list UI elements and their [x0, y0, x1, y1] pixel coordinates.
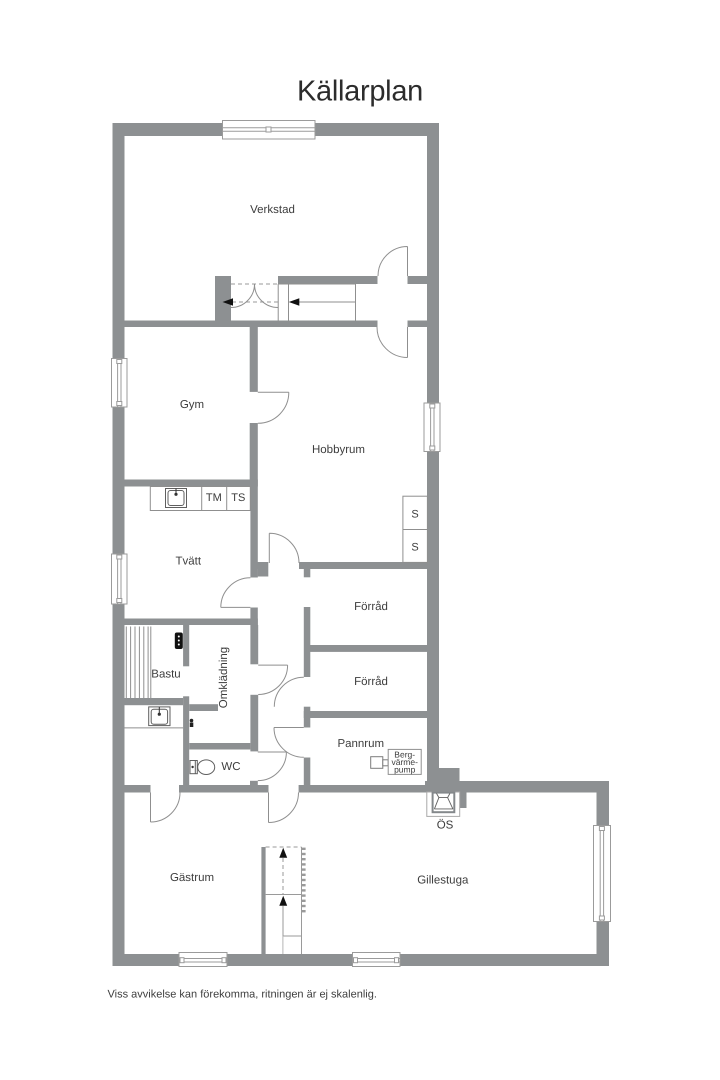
svg-text:S: S	[411, 542, 418, 554]
svg-text:Källarplan: Källarplan	[297, 76, 423, 108]
svg-text:Förråd: Förråd	[354, 600, 388, 613]
svg-text:Gillestuga: Gillestuga	[417, 875, 469, 887]
svg-text:S: S	[411, 509, 418, 521]
svg-text:TS: TS	[231, 492, 245, 504]
svg-text:Gym: Gym	[180, 399, 204, 411]
svg-text:ÖS: ÖS	[437, 819, 454, 832]
svg-text:Viss avvikelse kan förekomma,: Viss avvikelse kan förekomma, ritningen …	[108, 989, 377, 1001]
svg-text:Verkstad: Verkstad	[250, 204, 295, 216]
svg-text:Hobbyrum: Hobbyrum	[312, 444, 365, 456]
svg-text:Omklädning: Omklädning	[218, 647, 230, 708]
svg-text:Pannrum: Pannrum	[337, 738, 384, 750]
svg-text:Förråd: Förråd	[354, 675, 388, 688]
svg-text:Gästrum: Gästrum	[170, 872, 214, 884]
svg-text:Tvätt: Tvätt	[176, 556, 202, 568]
svg-text:pump: pump	[394, 765, 416, 775]
svg-text:WC: WC	[221, 761, 240, 773]
svg-text:TM: TM	[206, 492, 222, 504]
svg-text:Bastu: Bastu	[151, 669, 180, 681]
